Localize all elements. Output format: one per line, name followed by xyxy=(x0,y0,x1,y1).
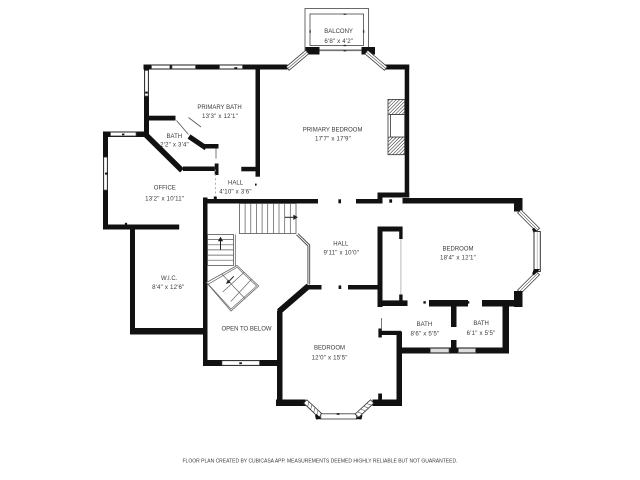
svg-text:8'4" x 12'6": 8'4" x 12'6" xyxy=(152,284,184,291)
svg-text:6'8" x 4'2": 6'8" x 4'2" xyxy=(324,38,353,45)
svg-text:9'11" x 10'0": 9'11" x 10'0" xyxy=(324,250,360,257)
svg-text:BATH: BATH xyxy=(167,134,183,140)
svg-text:BATH: BATH xyxy=(417,322,433,328)
svg-text:FLOOR PLAN CREATED BY CUBICASA: FLOOR PLAN CREATED BY CUBICASA APP. MEAS… xyxy=(183,459,458,465)
svg-text:BATH: BATH xyxy=(473,321,489,327)
svg-text:OFFICE: OFFICE xyxy=(154,186,176,192)
svg-text:BEDROOM: BEDROOM xyxy=(314,346,345,352)
svg-text:12'0" x 15'5": 12'0" x 15'5" xyxy=(312,354,348,361)
svg-text:17'7" x 17'9": 17'7" x 17'9" xyxy=(315,136,351,143)
svg-text:4'10" x 3'6": 4'10" x 3'6" xyxy=(219,189,251,196)
svg-text:OPEN TO BELOW: OPEN TO BELOW xyxy=(221,327,271,333)
svg-text:PRIMARY BATH: PRIMARY BATH xyxy=(197,105,241,111)
svg-text:8'6" x 5'5": 8'6" x 5'5" xyxy=(410,330,439,337)
svg-text:13'2" x 10'11": 13'2" x 10'11" xyxy=(145,196,184,203)
svg-text:18'4" x 12'1": 18'4" x 12'1" xyxy=(440,255,476,262)
svg-text:BEDROOM: BEDROOM xyxy=(442,247,473,253)
svg-text:6'1" x 5'5": 6'1" x 5'5" xyxy=(467,330,496,337)
svg-text:2'2" x 3'4": 2'2" x 3'4" xyxy=(160,142,189,149)
svg-text:HALL: HALL xyxy=(333,241,349,247)
svg-text:PRIMARY BEDROOM: PRIMARY BEDROOM xyxy=(303,127,363,133)
svg-text:13'3" x 12'1": 13'3" x 12'1" xyxy=(202,113,238,120)
svg-text:HALL: HALL xyxy=(228,181,244,187)
svg-text:BALCONY: BALCONY xyxy=(324,29,353,35)
svg-text:W.I.C.: W.I.C. xyxy=(161,276,178,282)
